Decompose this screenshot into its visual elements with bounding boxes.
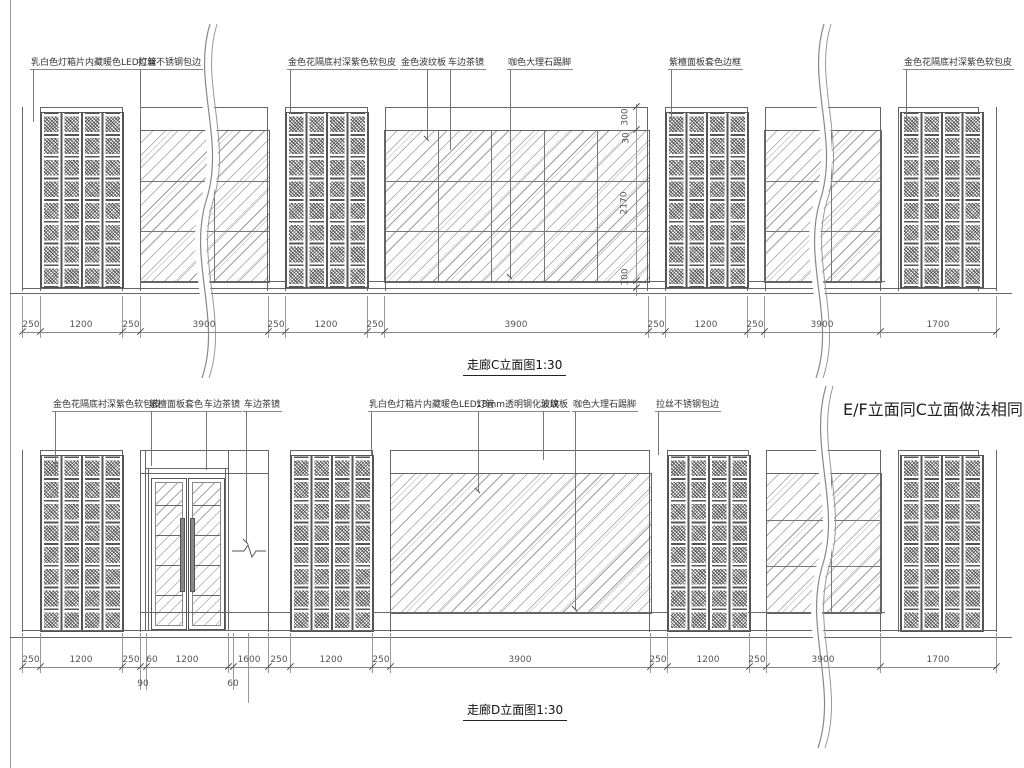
wall-base-line <box>22 288 996 289</box>
sub-dim-text: 60 <box>218 679 248 689</box>
dim-text: 1200 <box>61 320 101 330</box>
dim-text: 1700 <box>918 655 958 665</box>
pilaster-strip <box>880 450 899 632</box>
gold-lattice-panel <box>665 112 749 288</box>
callout-label: 紫檀面板套色 <box>148 400 205 412</box>
vdim-text: 30 <box>622 132 632 143</box>
leader-line <box>658 411 659 455</box>
leader-line <box>206 411 207 470</box>
dim-text: 250 <box>111 320 151 330</box>
callout-label: 拉丝不锈钢包边 <box>137 58 203 70</box>
callout-label: 金色波纹板 <box>400 58 448 70</box>
dim-text: 250 <box>735 320 775 330</box>
dim-text: 250 <box>11 655 51 665</box>
callout-label: 咖色大理石踢脚 <box>507 58 573 70</box>
leader-line <box>246 411 247 543</box>
extension-line <box>248 633 249 703</box>
drawing-title: 走廊D立面图1:30 <box>463 701 567 721</box>
glass-joint-line <box>385 231 649 232</box>
dim-text: 1200 <box>686 320 726 330</box>
gold-lattice-panel <box>285 112 369 288</box>
glass-joint-line <box>491 131 492 282</box>
door-handle <box>190 518 195 592</box>
vdim-text: 300 <box>621 108 631 125</box>
gold-lattice-panel <box>40 455 124 632</box>
leader-line <box>478 411 479 492</box>
leader-line <box>906 69 907 122</box>
callout-label: 拉丝不锈钢包边 <box>655 400 721 412</box>
glass-joint-line <box>385 181 649 182</box>
leader-line <box>290 69 291 114</box>
dim-text: 3900 <box>500 655 540 665</box>
skirting-line <box>372 612 667 613</box>
callout-label: 车边茶镜 <box>243 400 282 412</box>
dim-text: 1200 <box>688 655 728 665</box>
dim-text: 250 <box>636 320 676 330</box>
gold-lattice-panel <box>667 455 751 632</box>
dim-text: 250 <box>638 655 678 665</box>
dim-text: 3900 <box>803 655 843 665</box>
leader-line <box>33 69 34 122</box>
leader-line <box>575 411 576 610</box>
pilaster-strip <box>22 450 41 632</box>
frame-border <box>10 0 11 768</box>
pilaster-strip <box>122 107 141 291</box>
dim-text: 250 <box>355 320 395 330</box>
vdim-line <box>636 104 637 296</box>
callout-label: 金色花隔底衬深紫色软包皮 <box>903 58 1014 70</box>
zigzag-break <box>232 544 266 558</box>
break-line <box>798 386 844 748</box>
dim-text: 3900 <box>496 320 536 330</box>
dim-text: 250 <box>259 655 299 665</box>
leader-line <box>55 411 56 476</box>
pilaster-strip <box>268 450 291 632</box>
leader-line <box>371 411 372 455</box>
glass-joint-line <box>597 131 598 282</box>
callout-label: 车边茶镜 <box>203 400 242 412</box>
door-frame-line <box>228 450 229 630</box>
door-glass <box>192 482 221 626</box>
door-glass <box>155 482 183 626</box>
pilaster-strip <box>880 107 899 291</box>
dim-text: 1200 <box>311 655 351 665</box>
dim-line <box>22 667 996 668</box>
pilaster-strip <box>22 107 41 291</box>
leader-line <box>450 69 451 150</box>
dim-text: 250 <box>256 320 296 330</box>
dim-text: 250 <box>11 320 51 330</box>
cad-sheet: 300 30 2170 100 250 1200 250 3900 250 12… <box>0 0 1024 768</box>
drawing-title: 走廊C立面图1:30 <box>463 356 566 376</box>
glass-joint-line <box>544 131 545 282</box>
leader-line <box>151 411 152 466</box>
vdim-text: 2170 <box>619 192 629 215</box>
leader-line <box>510 69 511 278</box>
dim-text: 60 <box>132 655 172 665</box>
skirting-line <box>140 612 290 613</box>
dim-text: 250 <box>737 655 777 665</box>
tempered-glass-panel <box>390 473 652 614</box>
pilaster-strip <box>372 450 391 632</box>
callout-label: 车边茶镜 <box>447 58 486 70</box>
gold-lattice-panel <box>290 455 374 632</box>
gold-lattice-panel <box>900 455 984 632</box>
wall-top-line <box>22 107 996 108</box>
floor-line <box>10 293 1012 294</box>
mirror-glass-panel <box>384 130 650 283</box>
leader-line <box>543 411 544 460</box>
callout-label: 紫檀面板套色边框 <box>668 58 743 70</box>
leader-line <box>427 69 428 140</box>
dim-text: 250 <box>361 655 401 665</box>
gold-lattice-panel <box>900 112 984 288</box>
floor-line <box>10 637 1012 638</box>
wall-base-line <box>22 630 996 631</box>
door-handle <box>180 518 185 592</box>
dim-text: 3900 <box>184 320 224 330</box>
vdim-text: 100 <box>621 268 631 285</box>
leader-line <box>671 69 672 118</box>
door-frame-line <box>225 468 226 630</box>
gold-lattice-panel <box>40 112 124 288</box>
dim-line <box>22 332 996 333</box>
door-frame-line <box>145 450 146 630</box>
callout-label: 咖色大理石踢脚 <box>572 400 638 412</box>
ef-note: E/F立面同C立面做法相同 <box>843 396 1023 420</box>
callout-label: 金色花隔底衬深紫色软包皮 <box>287 58 398 70</box>
dim-text: 1700 <box>918 320 958 330</box>
leader-line <box>140 69 141 118</box>
glass-joint-line <box>438 131 439 282</box>
dim-text: 1200 <box>167 655 207 665</box>
door-head-line <box>145 468 228 469</box>
sub-dim-text: 90 <box>128 679 158 689</box>
door-frame-line <box>148 468 149 630</box>
pilaster-strip <box>122 450 141 632</box>
wall-top-line <box>22 450 996 451</box>
callout-label: 波纹板 <box>540 400 570 412</box>
dim-text: 1200 <box>306 320 346 330</box>
callout-label: 金色花隔底衬深紫色软包皮 <box>52 400 163 412</box>
dim-text: 3900 <box>802 320 842 330</box>
dim-text: 1200 <box>61 655 101 665</box>
